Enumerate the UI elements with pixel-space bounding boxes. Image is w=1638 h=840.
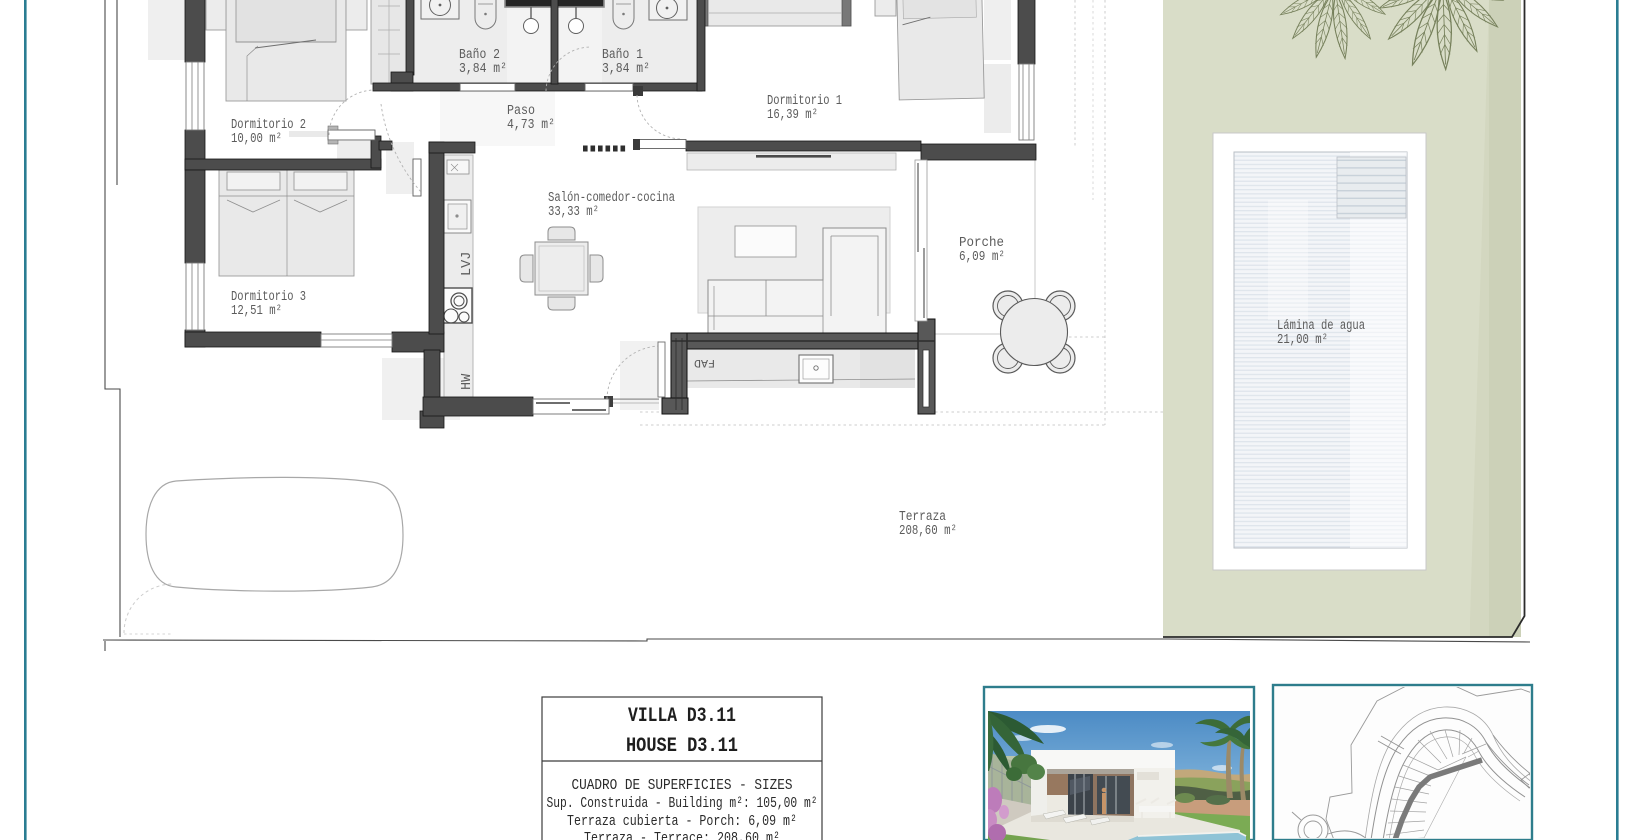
svg-text:Baño 1: Baño 1 — [602, 48, 643, 63]
svg-text:21,00 m²: 21,00 m² — [1277, 333, 1328, 348]
svg-text:Sup. Construida - Building m²: Sup. Construida - Building m²: 105,00 m² — [547, 795, 818, 812]
svg-text:Terraza: Terraza — [899, 510, 946, 525]
svg-text:10,00 m²: 10,00 m² — [231, 132, 282, 147]
svg-text:Terraza cubierta - Porch: 6,0: Terraza cubierta - Porch: 6,09 m² — [567, 813, 797, 830]
svg-text:Lámina de agua: Lámina de agua — [1277, 319, 1365, 334]
svg-text:208,60 m²: 208,60 m² — [899, 524, 957, 539]
svg-text:Dormitorio 3: Dormitorio 3 — [231, 290, 306, 305]
svg-text:3,84 m²: 3,84 m² — [459, 62, 507, 77]
svg-text:HW: HW — [460, 373, 475, 390]
svg-text:FAD: FAD — [694, 356, 715, 368]
svg-text:Dormitorio 1: Dormitorio 1 — [767, 94, 842, 109]
svg-text:Dormitorio 2: Dormitorio 2 — [231, 118, 306, 133]
svg-text:Terraza - Terrace: 208,60 m²: Terraza - Terrace: 208,60 m² — [584, 830, 780, 840]
svg-text:HOUSE D3.11: HOUSE D3.11 — [626, 735, 738, 758]
svg-text:6,09 m²: 6,09 m² — [959, 250, 1005, 265]
svg-text:4,73 m²: 4,73 m² — [507, 118, 555, 133]
svg-text:16,39 m²: 16,39 m² — [767, 108, 818, 123]
svg-text:3,84 m²: 3,84 m² — [602, 62, 650, 77]
svg-text:Baño 2: Baño 2 — [459, 48, 500, 63]
svg-text:Porche: Porche — [959, 236, 1004, 251]
svg-text:Paso: Paso — [507, 104, 535, 119]
svg-text:12,51 m²: 12,51 m² — [231, 304, 282, 319]
svg-text:Salón-comedor-cocina: Salón-comedor-cocina — [548, 191, 675, 206]
svg-text:33,33 m²: 33,33 m² — [548, 205, 599, 220]
svg-text:LVJ: LVJ — [460, 252, 475, 276]
svg-text:VILLA D3.11: VILLA D3.11 — [628, 705, 736, 728]
svg-text:CUADRO DE SUPERFICIES - SIZES: CUADRO DE SUPERFICIES - SIZES — [572, 777, 793, 794]
